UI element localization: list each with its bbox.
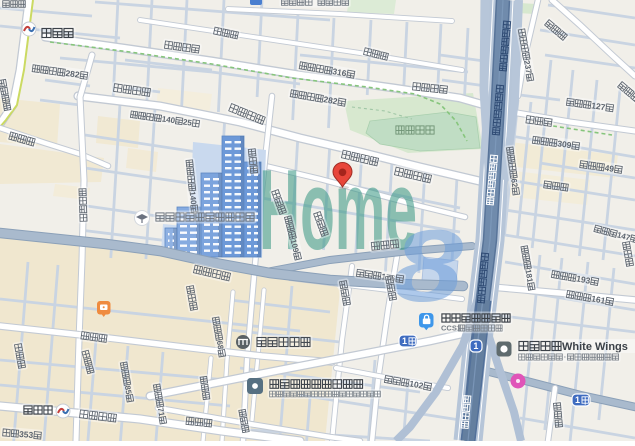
svg-text:140: 140 — [161, 114, 176, 125]
svg-text:309: 309 — [557, 138, 573, 150]
svg-text:1: 1 — [575, 395, 580, 405]
svg-text:25: 25 — [182, 117, 193, 127]
svg-text:127: 127 — [591, 100, 607, 112]
svg-text:62: 62 — [509, 178, 519, 189]
svg-text:353: 353 — [19, 429, 34, 440]
svg-text:CCS1: CCS1 — [441, 324, 461, 333]
svg-text:282: 282 — [65, 68, 81, 80]
svg-text:1: 1 — [402, 336, 407, 346]
svg-text:49: 49 — [604, 163, 615, 174]
svg-text:8: 8 — [392, 209, 463, 323]
svg-text:1: 1 — [473, 341, 478, 351]
svg-text:140: 140 — [188, 191, 198, 206]
svg-text:White Wings: White Wings — [562, 341, 628, 353]
